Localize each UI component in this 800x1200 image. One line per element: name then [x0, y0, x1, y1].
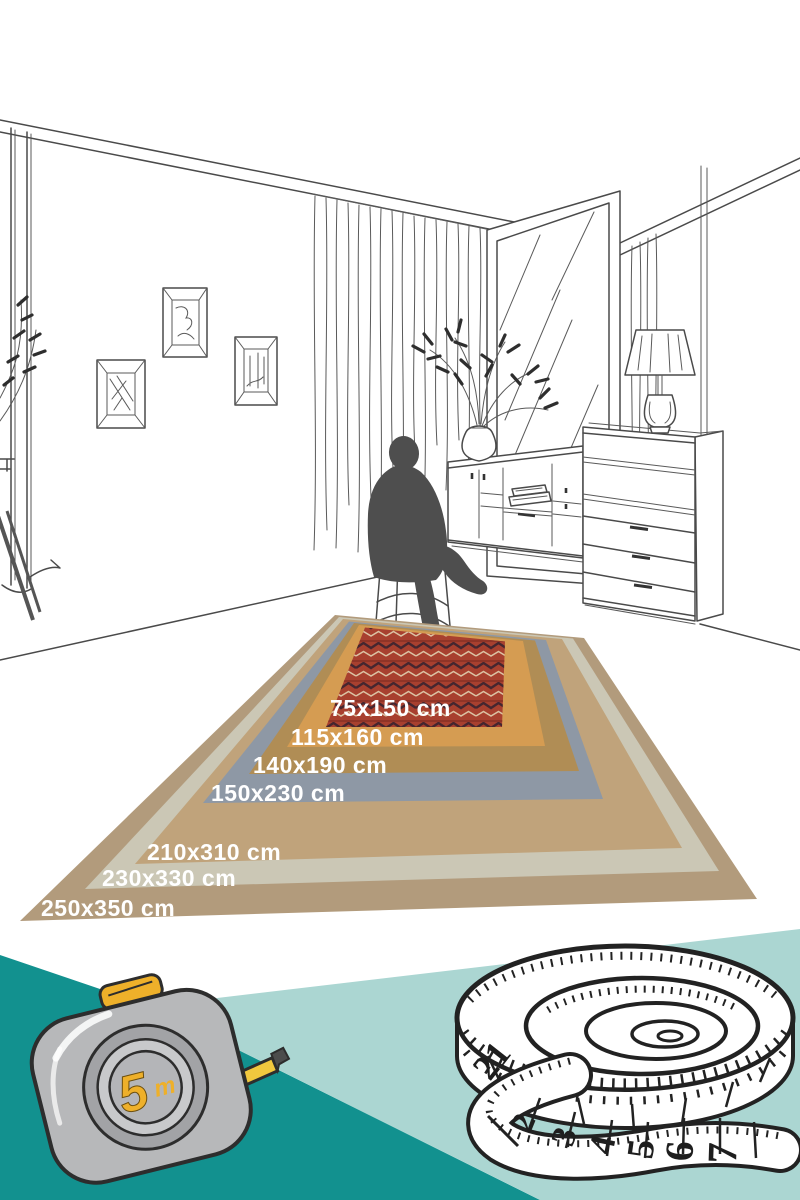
vase-icon: [462, 426, 496, 461]
rug-label-150x230: 150x230 cm: [211, 780, 345, 806]
tail-number-6: 6: [656, 1140, 702, 1163]
measuring-tape-icon: 21 22 2 3 4 5 6 7: [457, 946, 793, 1164]
rug-label-210x310: 210x310 cm: [147, 839, 281, 865]
sideboard: [448, 446, 583, 562]
poster-canvas: 75x150 cm 115x160 cm 140x190 cm 150x230 …: [0, 0, 800, 1200]
rug-label-230x330: 230x330 cm: [102, 865, 236, 891]
shelf-unit: [583, 423, 723, 624]
rug-label-115x160: 115x160 cm: [291, 724, 424, 750]
rug-size-poster: 75x150 cm 115x160 cm 140x190 cm 150x230 …: [0, 0, 800, 1200]
rug-label-250x350: 250x350 cm: [41, 895, 175, 921]
tail-number-7: 7: [700, 1142, 747, 1165]
rug-label-75x150: 75x150 cm: [330, 695, 451, 721]
rug-label-140x190: 140x190 cm: [253, 752, 387, 778]
